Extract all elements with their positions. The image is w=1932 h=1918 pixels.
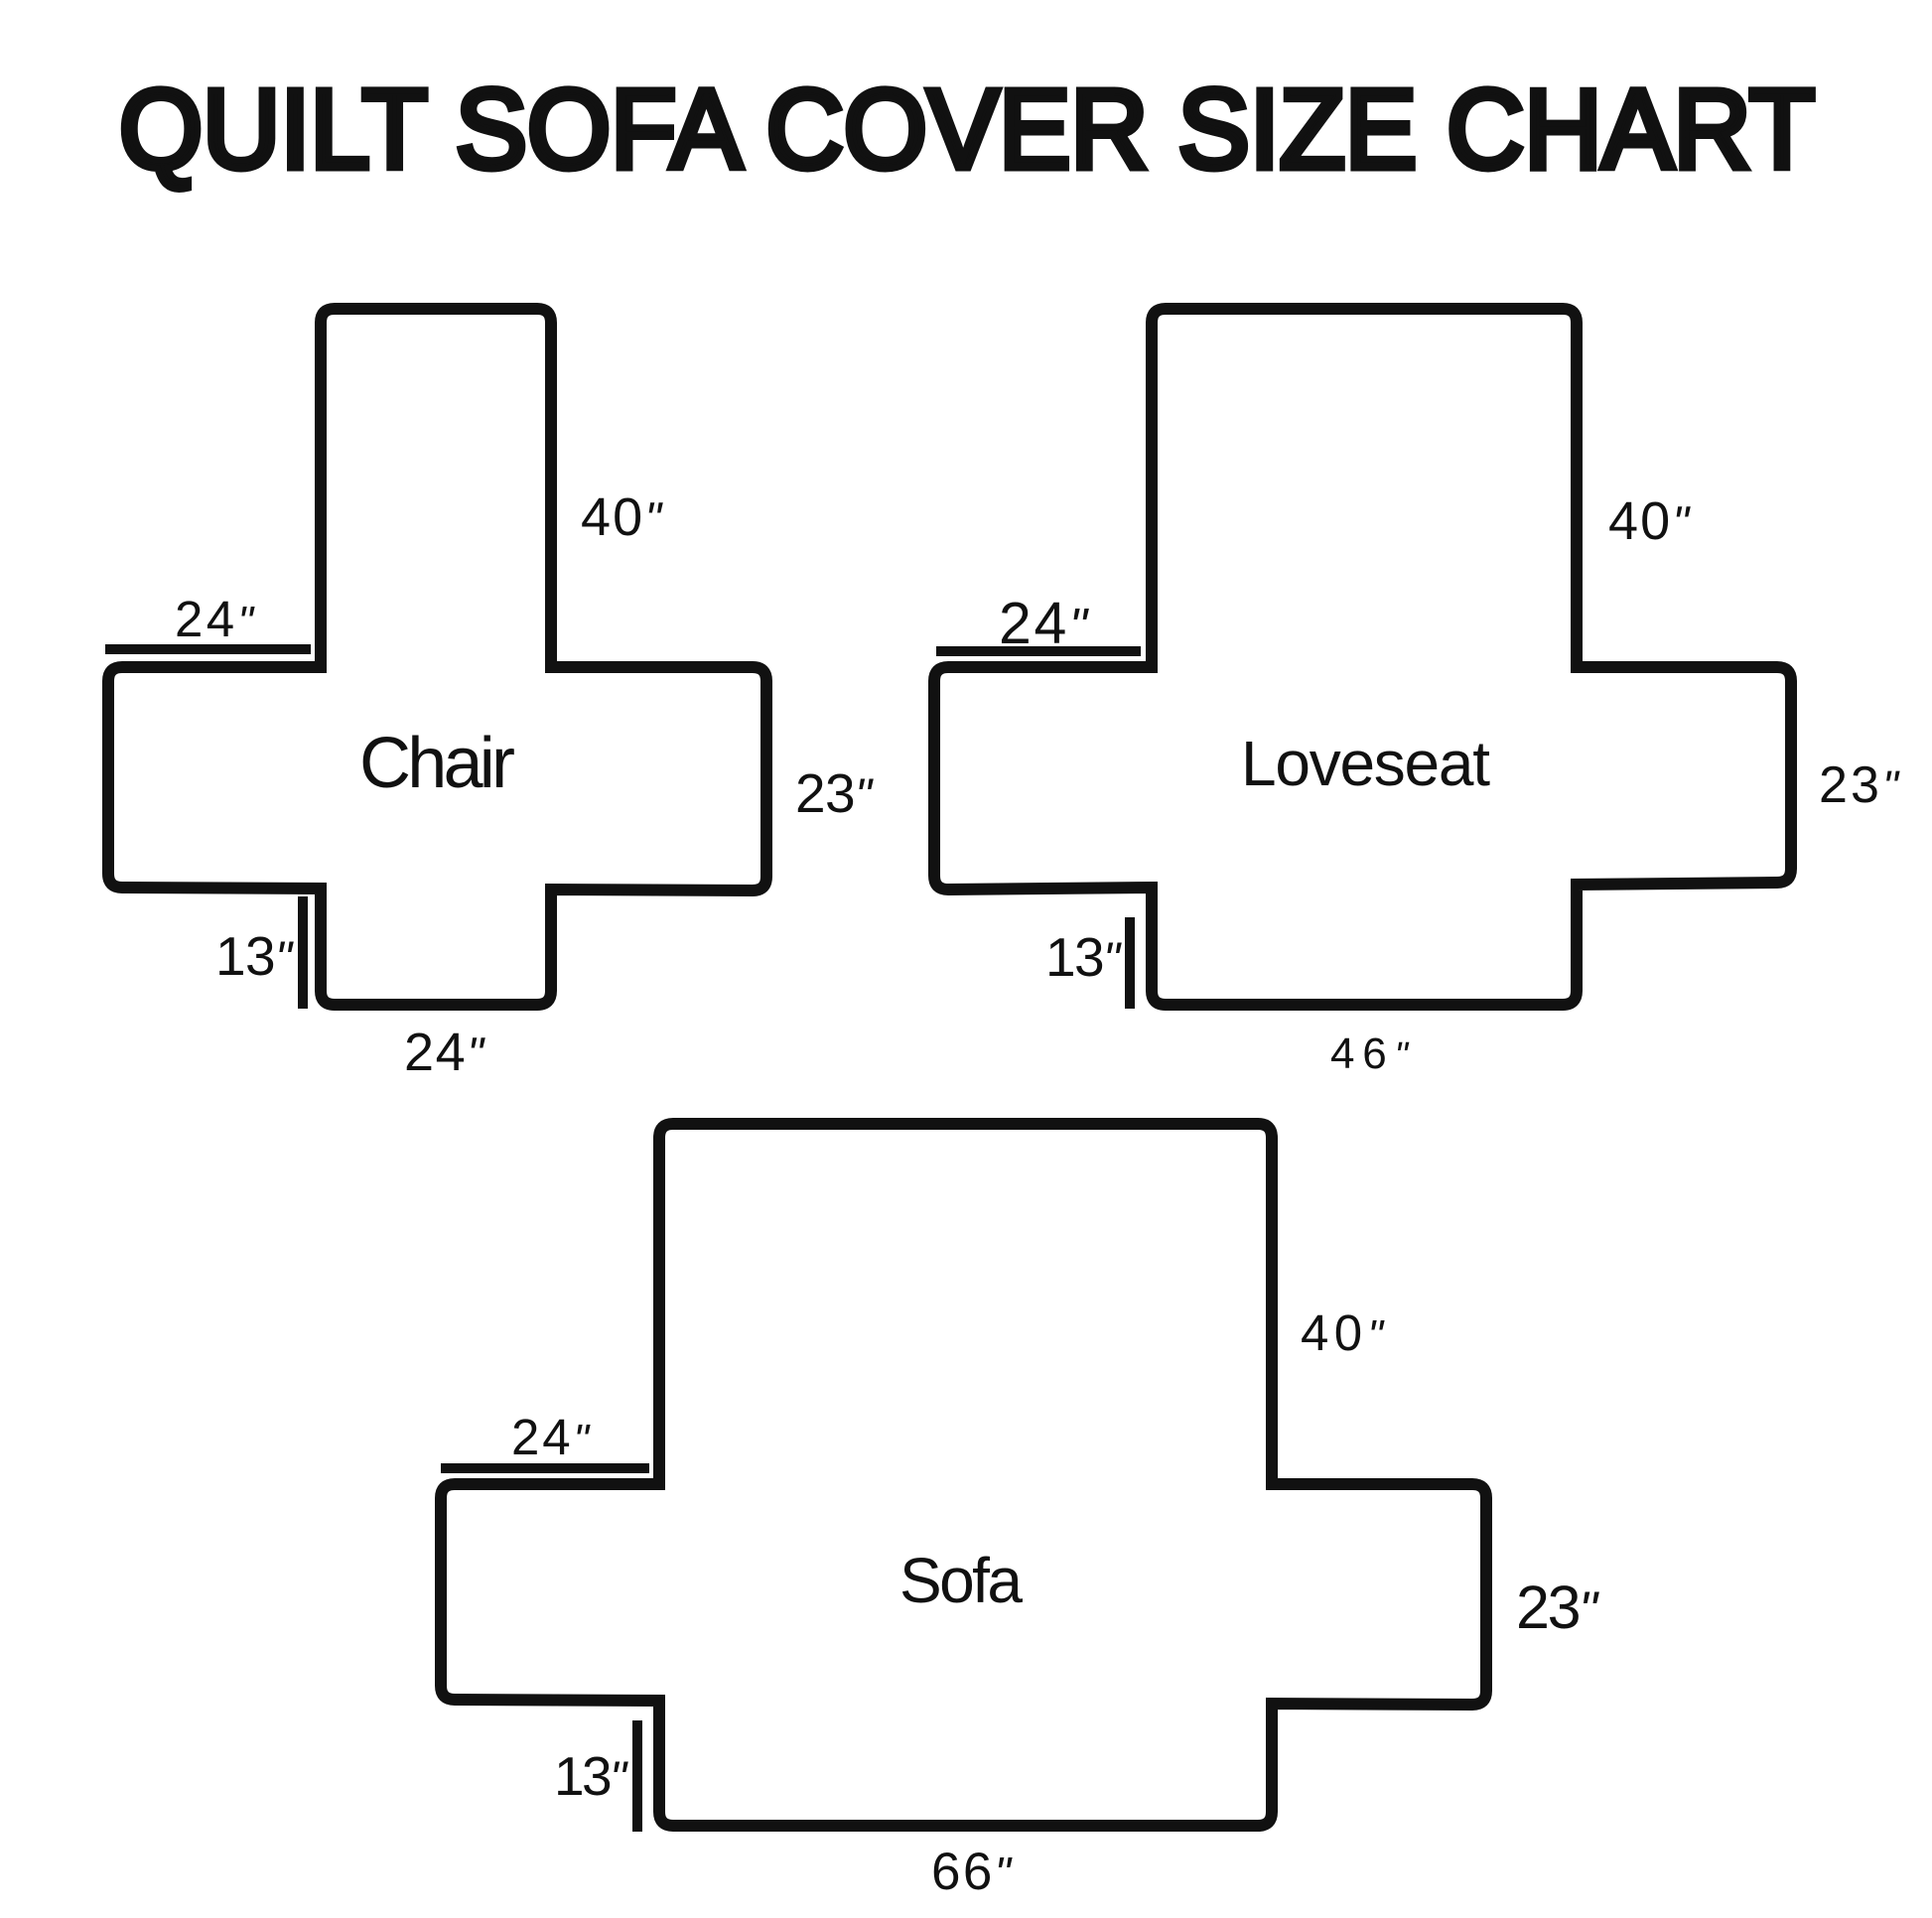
svg-text:40": 40" bbox=[581, 487, 663, 547]
svg-text:46": 46" bbox=[1330, 1029, 1410, 1078]
svg-text:24": 24" bbox=[404, 1023, 485, 1082]
svg-text:23": 23" bbox=[1516, 1574, 1599, 1641]
svg-text:66": 66" bbox=[931, 1843, 1014, 1901]
svg-text:QUILT SOFA COVER SIZE CHART: QUILT SOFA COVER SIZE CHART bbox=[119, 67, 1815, 192]
svg-text:Sofa: Sofa bbox=[899, 1545, 1023, 1616]
svg-text:13": 13" bbox=[215, 925, 294, 987]
svg-text:23": 23" bbox=[1819, 756, 1900, 814]
svg-text:23": 23" bbox=[795, 762, 874, 824]
svg-text:24": 24" bbox=[511, 1409, 591, 1465]
svg-text:Chair: Chair bbox=[359, 724, 515, 803]
svg-text:40": 40" bbox=[1301, 1304, 1385, 1361]
svg-text:24": 24" bbox=[175, 591, 255, 647]
svg-text:13": 13" bbox=[1045, 926, 1122, 988]
svg-text:24": 24" bbox=[999, 591, 1089, 656]
svg-text:13": 13" bbox=[554, 1745, 628, 1807]
svg-text:40": 40" bbox=[1608, 491, 1691, 551]
svg-text:Loveseat: Loveseat bbox=[1241, 728, 1490, 799]
